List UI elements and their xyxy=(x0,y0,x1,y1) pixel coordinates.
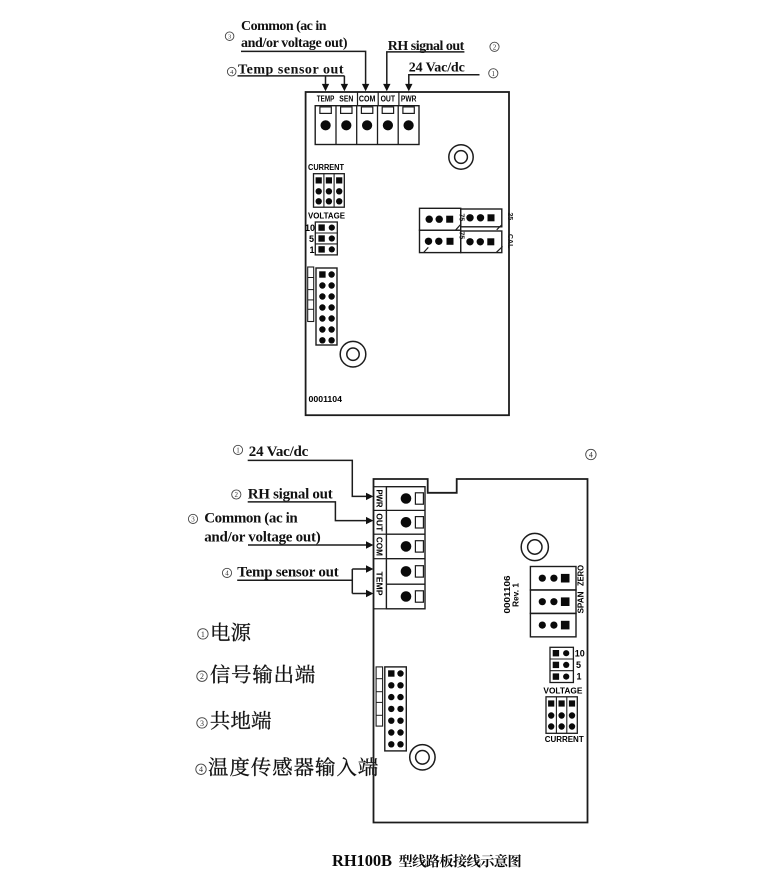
svg-text:3: 3 xyxy=(228,34,231,41)
svg-text:and/or voltage out): and/or voltage out) xyxy=(241,36,348,51)
svg-text:Common (ac in: Common (ac in xyxy=(241,19,327,34)
svg-text:CURRENT: CURRENT xyxy=(308,163,344,172)
svg-text:Common (ac in: Common (ac in xyxy=(204,511,298,527)
svg-text:SPAN: SPAN xyxy=(577,591,586,613)
svg-text:1: 1 xyxy=(577,672,582,682)
svg-text:4: 4 xyxy=(589,450,593,459)
svg-text:1: 1 xyxy=(201,630,205,639)
svg-text:0001104: 0001104 xyxy=(309,395,343,404)
svg-text:2: 2 xyxy=(235,491,239,499)
svg-text:Rev. 1: Rev. 1 xyxy=(512,582,521,607)
svg-text:75: 75 xyxy=(458,232,465,240)
svg-text:5: 5 xyxy=(576,660,581,670)
svg-text:10: 10 xyxy=(305,223,315,233)
svg-text:ZERO: ZERO xyxy=(577,565,586,586)
svg-text:RH signal out: RH signal out xyxy=(248,487,333,503)
svg-text:2: 2 xyxy=(200,672,204,681)
svg-text:3: 3 xyxy=(191,515,195,523)
svg-text:SEN: SEN xyxy=(339,95,353,104)
svg-text:OUT: OUT xyxy=(381,95,396,104)
svg-text:VOLTAGE: VOLTAGE xyxy=(308,212,346,221)
svg-text:PWR: PWR xyxy=(401,95,417,104)
svg-text:10: 10 xyxy=(575,648,585,658)
svg-text:CAL: CAL xyxy=(506,234,513,249)
svg-text:COM: COM xyxy=(359,95,376,104)
svg-text:CURRENT: CURRENT xyxy=(545,735,584,744)
svg-text:3: 3 xyxy=(200,719,204,728)
svg-text:4: 4 xyxy=(199,765,203,774)
svg-text:COM: COM xyxy=(375,537,384,556)
svg-text:PWR: PWR xyxy=(375,490,384,508)
svg-text:2: 2 xyxy=(493,43,497,51)
svg-text:TEMP: TEMP xyxy=(317,95,335,104)
svg-text:24 Vac/dc: 24 Vac/dc xyxy=(409,61,465,76)
svg-text:24 Vac/dc: 24 Vac/dc xyxy=(249,444,309,460)
svg-text:75: 75 xyxy=(458,214,465,222)
svg-text:TEMP: TEMP xyxy=(375,572,384,597)
svg-text:1: 1 xyxy=(492,70,496,78)
svg-text:RH100B: RH100B xyxy=(332,851,392,870)
svg-text:VOLTAGE: VOLTAGE xyxy=(543,687,583,696)
svg-text:1: 1 xyxy=(236,446,240,454)
svg-text:OUT: OUT xyxy=(375,513,384,531)
svg-text:4: 4 xyxy=(225,569,229,577)
svg-text:5: 5 xyxy=(309,234,314,244)
svg-text:and/or voltage out): and/or voltage out) xyxy=(204,530,321,546)
svg-text:1: 1 xyxy=(310,245,315,255)
svg-text:Temp sensor out: Temp sensor out xyxy=(237,565,339,581)
svg-text:25: 25 xyxy=(506,213,513,221)
